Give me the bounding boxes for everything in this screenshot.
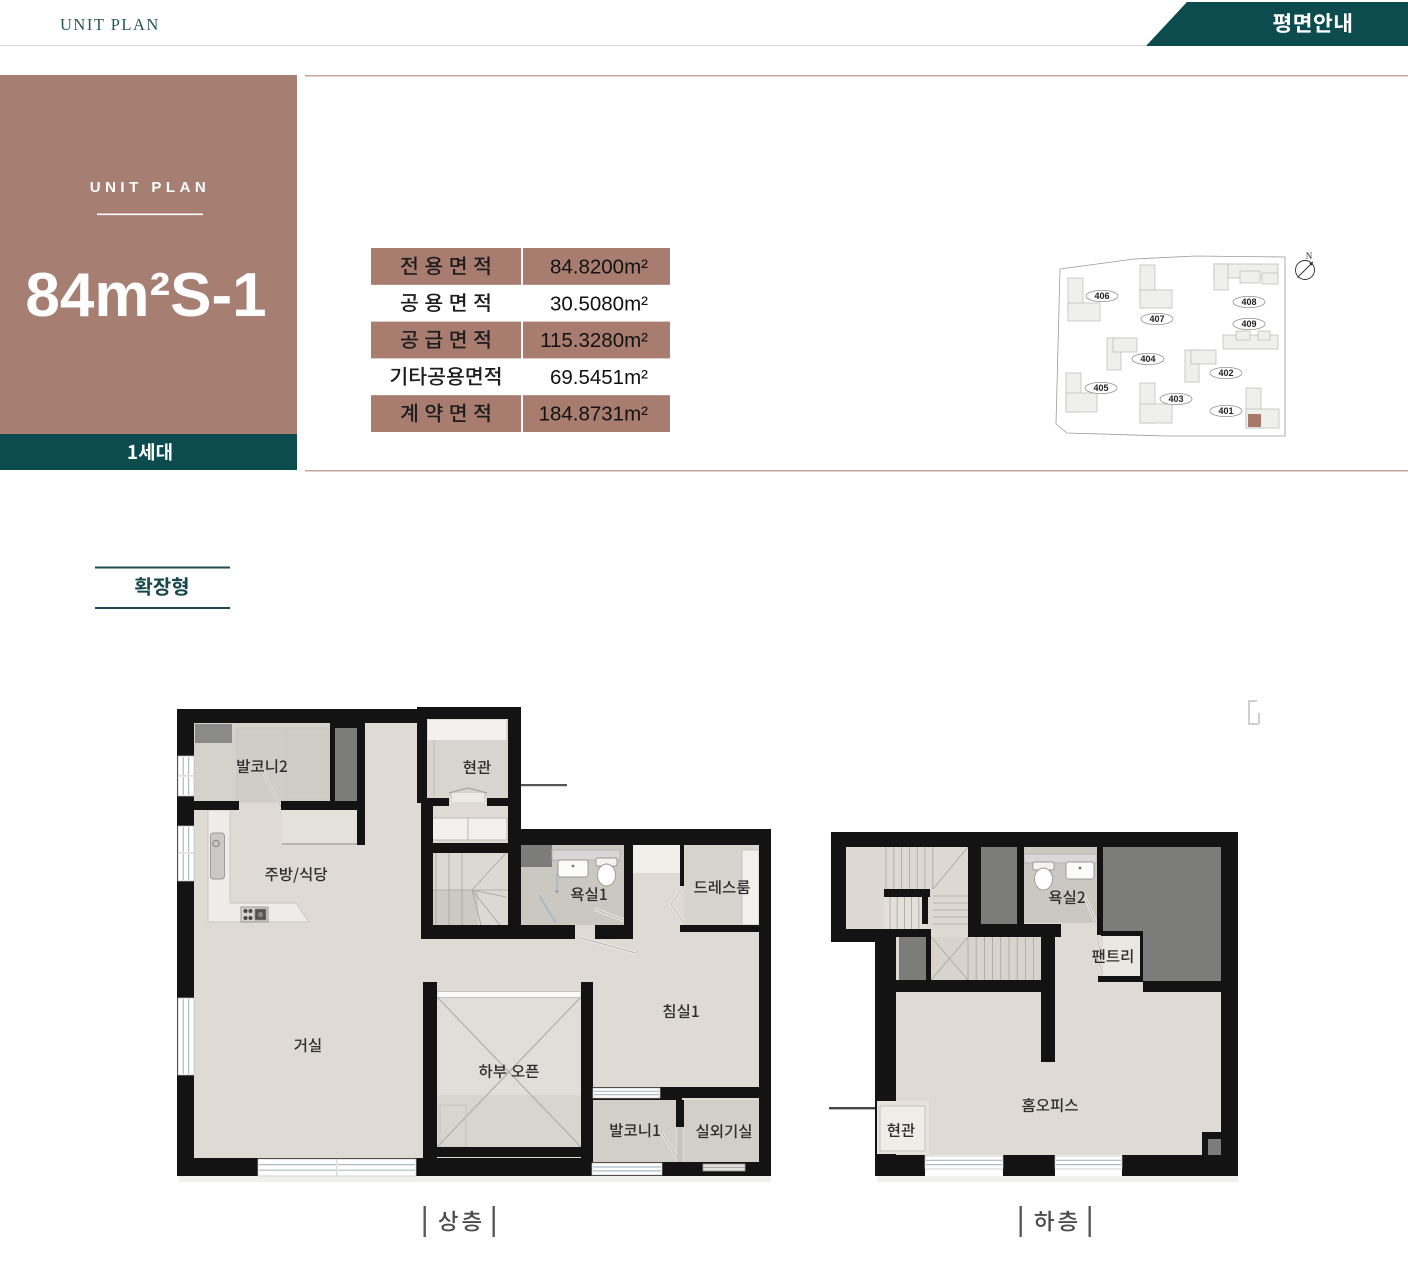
svg-text:404: 404 — [1140, 354, 1155, 364]
svg-text:407: 407 — [1149, 314, 1164, 324]
svg-text:405: 405 — [1093, 383, 1108, 393]
svg-text:408: 408 — [1241, 297, 1256, 307]
svg-text:401: 401 — [1218, 406, 1233, 416]
svg-text:184.8731m²: 184.8731m² — [539, 403, 649, 426]
svg-text:403: 403 — [1168, 394, 1183, 404]
svg-text:UNIT PLAN: UNIT PLAN — [90, 179, 211, 196]
svg-text:69.5451m²: 69.5451m² — [550, 366, 648, 389]
svg-text:30.5080m²: 30.5080m² — [550, 292, 648, 315]
svg-text:406: 406 — [1094, 291, 1109, 301]
svg-text:84m²S-1: 84m²S-1 — [25, 261, 266, 330]
svg-text:402: 402 — [1218, 368, 1233, 378]
svg-text:UNIT PLAN: UNIT PLAN — [60, 15, 160, 34]
svg-text:409: 409 — [1241, 319, 1256, 329]
svg-text:115.3280m²: 115.3280m² — [540, 329, 648, 352]
svg-text:84.8200m²: 84.8200m² — [550, 256, 648, 279]
svg-text:N: N — [1306, 251, 1313, 261]
